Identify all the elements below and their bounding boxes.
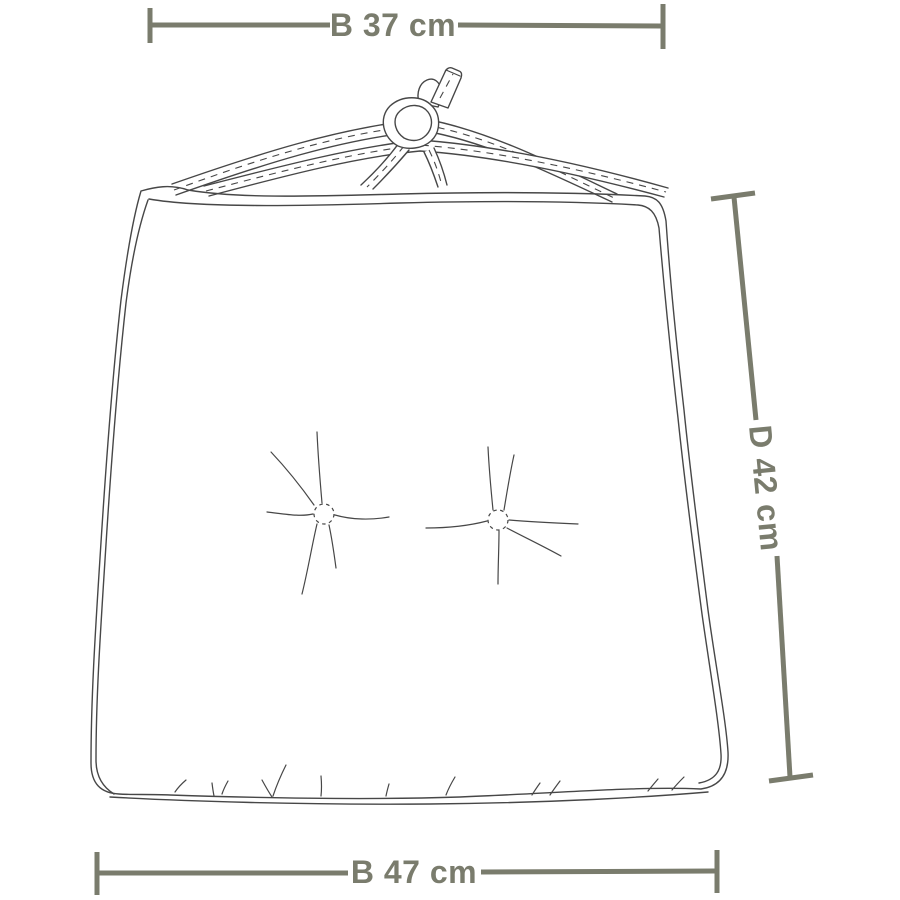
tuft-button-icon (314, 504, 334, 524)
dimension-label-bottom-width: B 47 cm (351, 854, 477, 890)
tuft-button-icon (488, 510, 508, 530)
diagram-canvas: B 37 cm D 42 cm B 47 cm (0, 0, 900, 900)
tuft-right (426, 447, 578, 584)
dimension-line-right (481, 871, 715, 872)
dimension-bottom-width: B 47 cm (97, 850, 717, 895)
tuft-left (267, 432, 389, 594)
dimension-line-lower (777, 556, 790, 777)
dimension-label-top-width: B 37 cm (330, 7, 456, 43)
dimension-line-right (458, 25, 661, 26)
cushion-outline (91, 187, 728, 799)
dimension-depth: D 42 cm (711, 193, 813, 781)
seat-cushion-drawing (91, 68, 728, 804)
bottom-wrinkles (175, 765, 684, 797)
dimension-top-width: B 37 cm (150, 4, 663, 49)
dimension-label-depth: D 42 cm (742, 423, 790, 552)
cushion-seam-top-right (149, 199, 721, 783)
cushion-dimension-diagram: B 37 cm D 42 cm B 47 cm (0, 0, 900, 900)
dimension-line-upper (734, 197, 756, 420)
